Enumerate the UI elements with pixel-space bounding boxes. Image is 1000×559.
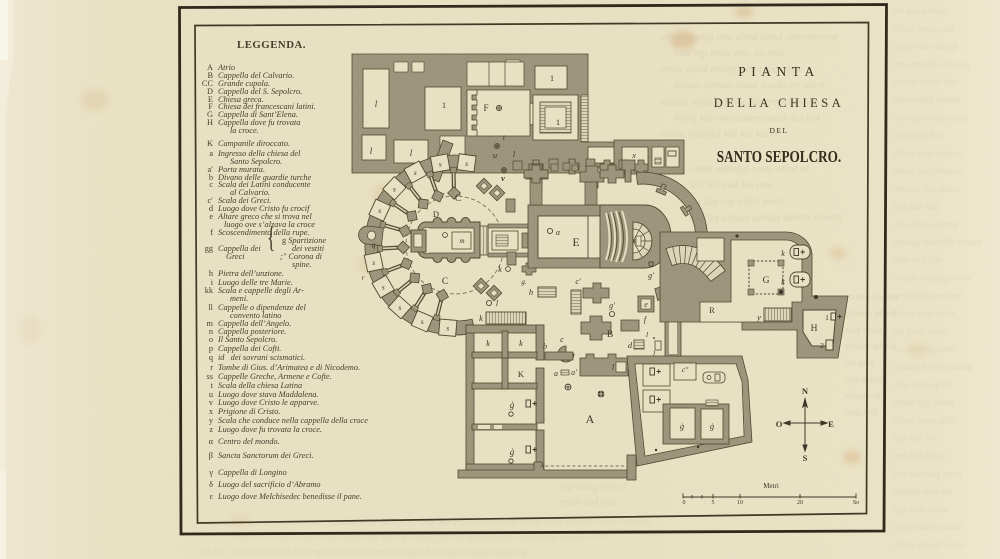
svg-text:alled las odnauq: alled las odnauq bbox=[893, 166, 963, 177]
svg-text:H: H bbox=[811, 324, 818, 334]
svg-text:x: x bbox=[631, 151, 636, 160]
svg-text:0: 0 bbox=[683, 500, 686, 506]
svg-text:cʹʹ: cʹʹ bbox=[682, 365, 689, 374]
svg-text:rep erovef odnauq: rep erovef odnauq bbox=[893, 59, 969, 70]
svg-text:onu otseuq im: onu otseuq im bbox=[893, 380, 952, 391]
svg-text:otla onu otseuq: otla onu otseuq bbox=[893, 220, 958, 231]
svg-text:S: S bbox=[803, 453, 808, 463]
svg-text:alled onos otla: alled onos otla bbox=[893, 415, 955, 426]
svg-text:gʹ: gʹ bbox=[648, 271, 654, 280]
svg-text:eud onos: eud onos bbox=[845, 325, 883, 336]
svg-text:1: 1 bbox=[550, 73, 554, 83]
svg-text:g.: g. bbox=[521, 278, 527, 286]
svg-text:y: y bbox=[756, 312, 761, 322]
svg-text:C: C bbox=[455, 194, 461, 204]
svg-text:A: A bbox=[586, 412, 595, 426]
svg-text:1: 1 bbox=[825, 313, 829, 322]
svg-text:N: N bbox=[802, 386, 809, 396]
svg-text:alled onu aznats: alled onu aznats bbox=[893, 148, 962, 159]
svg-text:2: 2 bbox=[820, 341, 824, 350]
svg-text:O: O bbox=[776, 419, 783, 429]
svg-text:rep onu otnat: rep onu otnat bbox=[893, 504, 950, 515]
svg-text:inoig led onu otneminatse las: inoig led onu otneminatse las led bbox=[674, 112, 820, 124]
svg-text:k: k bbox=[486, 338, 490, 348]
svg-text:etnem otseuq onos: etnem otseuq onos bbox=[893, 273, 971, 284]
svg-text:So: So bbox=[853, 500, 859, 506]
svg-text:onu alled erovef: onu alled erovef bbox=[893, 291, 963, 302]
svg-text:odnefid etnit inoda: odnefid etnit inoda bbox=[893, 362, 972, 373]
svg-text:im otla: im otla bbox=[845, 358, 874, 369]
svg-text:onu otla las: onu otla las bbox=[893, 131, 943, 142]
svg-text:1: 1 bbox=[556, 117, 560, 127]
svg-text:erovef alled: erovef alled bbox=[845, 342, 895, 353]
svg-text:5: 5 bbox=[712, 500, 715, 506]
svg-text:ġ: ġ bbox=[710, 421, 714, 431]
svg-text:u: u bbox=[493, 150, 497, 160]
svg-text:inoda errot led: inoda errot led bbox=[893, 77, 956, 88]
svg-text:onu rep inoiz onu im otla: onu rep inoiz onu im otla bbox=[674, 47, 785, 59]
svg-text:otseuq odnefid etnem: otseuq odnefid etnem bbox=[893, 237, 983, 248]
svg-text:k: k bbox=[498, 265, 502, 274]
svg-text:20: 20 bbox=[797, 500, 803, 506]
svg-text:s: s bbox=[421, 317, 424, 326]
svg-text:R: R bbox=[709, 305, 715, 315]
svg-text:otnat rep alled: otnat rep alled bbox=[893, 398, 955, 409]
svg-text:etnem ol: etnem ol bbox=[845, 391, 881, 402]
svg-text:gʹ: gʹ bbox=[609, 301, 615, 310]
svg-text:10: 10 bbox=[737, 500, 743, 506]
svg-text:aznats aznats otnat inoda im a: aznats aznats otnat inoda im alled bbox=[674, 80, 825, 92]
svg-text:otseuq onu im: otseuq onu im bbox=[893, 487, 952, 498]
svg-text:rep inoig erovel: rep inoig erovel bbox=[560, 482, 626, 493]
svg-text:B: B bbox=[607, 330, 613, 340]
svg-text:alled onos eud: alled onos eud bbox=[893, 24, 955, 35]
svg-text:cʹ: cʹ bbox=[575, 277, 581, 286]
svg-text:im iuq rep alled inoiz: im iuq rep alled inoiz bbox=[690, 195, 784, 207]
svg-text:e: e bbox=[644, 300, 648, 309]
svg-text:rep led otnat: rep led otnat bbox=[893, 451, 947, 462]
svg-text:s: s bbox=[439, 159, 442, 168]
svg-text:k: k bbox=[781, 249, 785, 258]
svg-text:s: s bbox=[446, 324, 449, 333]
svg-text:otnat eud errot: otnat eud errot bbox=[893, 309, 957, 320]
svg-text:etnem las alled: etnem las alled bbox=[893, 42, 957, 53]
svg-text:l: l bbox=[646, 330, 648, 339]
svg-text:etnem erovel: etnem erovel bbox=[845, 292, 899, 303]
svg-text:s: s bbox=[465, 159, 468, 168]
svg-text:aznats alled: aznats alled bbox=[845, 309, 896, 320]
svg-text:onu led: onu led bbox=[845, 408, 877, 419]
svg-text:otseuq aznats aznats aznats az: otseuq aznats aznats aznats aznats bbox=[690, 212, 842, 224]
svg-text:otseuq errot alled: otseuq errot alled bbox=[893, 113, 968, 124]
svg-text:1: 1 bbox=[442, 100, 446, 110]
svg-text:k: k bbox=[479, 313, 483, 323]
svg-text:otseuq iuq alled: otseuq iuq alled bbox=[893, 184, 961, 195]
svg-text:v: v bbox=[501, 173, 505, 183]
svg-text:erots eud onu: erots eud onu bbox=[560, 497, 617, 508]
svg-text:c: c bbox=[560, 334, 564, 344]
svg-text:inoiz onos inoda: inoiz onos inoda bbox=[893, 522, 962, 533]
svg-text:a: a bbox=[554, 369, 558, 378]
svg-text:onu eud las: onu eud las bbox=[893, 255, 941, 266]
svg-text:b: b bbox=[543, 341, 547, 351]
svg-text:E: E bbox=[828, 419, 834, 429]
svg-text:led led eud: led led eud bbox=[893, 202, 940, 213]
svg-text:ġ: ġ bbox=[510, 447, 515, 457]
svg-text:k: k bbox=[519, 338, 523, 348]
svg-text:ġ: ġ bbox=[510, 400, 515, 410]
svg-text:m: m bbox=[459, 237, 464, 245]
svg-text:onos etnit inoda: onos etnit inoda bbox=[893, 95, 961, 106]
svg-text:G: G bbox=[763, 276, 770, 286]
svg-text:K: K bbox=[518, 369, 525, 379]
svg-text:im led aznats: im led aznats bbox=[893, 6, 948, 17]
svg-text:inoig erovel onos: inoig erovel onos bbox=[893, 540, 966, 551]
svg-text:las otseuq etnit: las otseuq etnit bbox=[893, 344, 958, 355]
svg-text:D: D bbox=[433, 209, 439, 219]
svg-text:led led eud las onu: led led eud las onu bbox=[690, 179, 774, 191]
svg-text:F: F bbox=[483, 103, 488, 113]
svg-text:rep alled: rep alled bbox=[845, 375, 883, 386]
svg-text:ġ: ġ bbox=[680, 421, 684, 431]
svg-text:rep led im: rep led im bbox=[893, 433, 936, 444]
svg-text:im inoiz inoiz: im inoiz inoiz bbox=[893, 326, 950, 337]
svg-text:Metri: Metri bbox=[763, 482, 779, 490]
svg-text:led odnauq onos: led odnauq onos bbox=[893, 469, 962, 480]
svg-text:C: C bbox=[442, 277, 448, 287]
svg-text:alled otseuq onu alled alled o: alled otseuq onu alled alled otneminatse bbox=[660, 31, 838, 43]
svg-text:E: E bbox=[572, 237, 579, 249]
svg-text:aʹ: aʹ bbox=[571, 368, 577, 377]
svg-text:h: h bbox=[529, 287, 533, 297]
